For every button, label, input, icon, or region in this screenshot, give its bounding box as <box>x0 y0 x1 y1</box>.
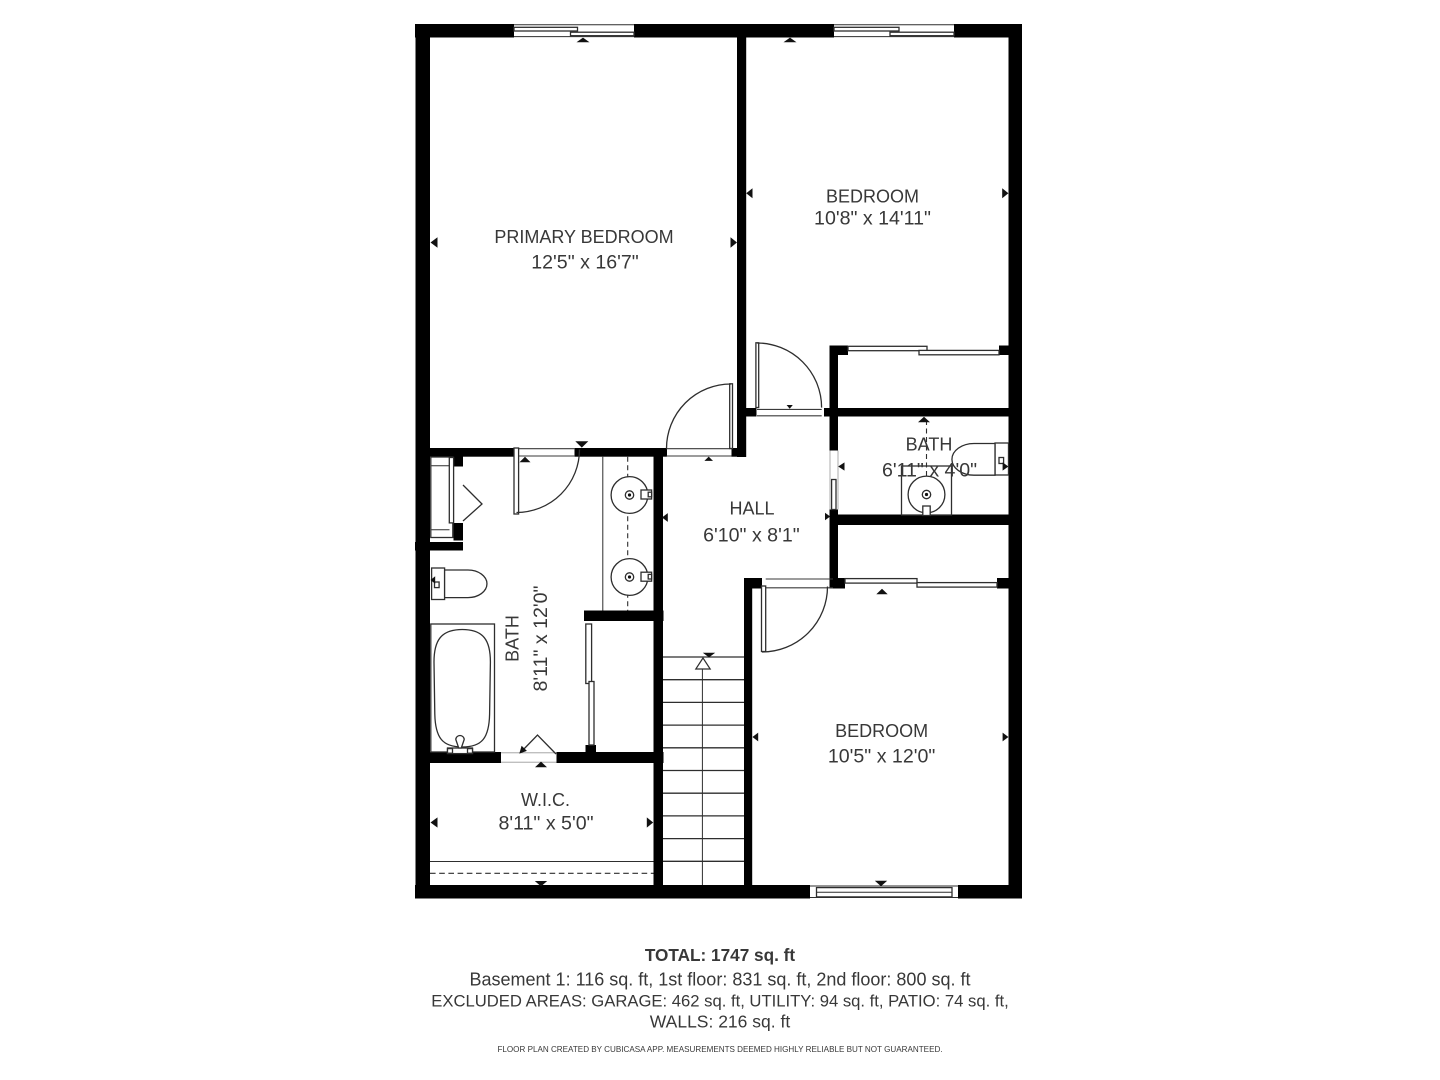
svg-text:10'8" x 14'11": 10'8" x 14'11" <box>814 208 931 230</box>
svg-text:8'11" x 12'0": 8'11" x 12'0" <box>530 585 552 691</box>
svg-text:Basement 1: 116 sq. ft, 1st fl: Basement 1: 116 sq. ft, 1st floor: 831 s… <box>470 970 971 990</box>
svg-text:BATH: BATH <box>503 615 523 662</box>
svg-text:HALL: HALL <box>729 499 774 519</box>
svg-text:W.I.C.: W.I.C. <box>521 790 570 810</box>
svg-text:10'5" x 12'0": 10'5" x 12'0" <box>828 745 936 767</box>
svg-text:FLOOR PLAN CREATED BY CUBICASA: FLOOR PLAN CREATED BY CUBICASA APP. MEAS… <box>497 1045 942 1054</box>
svg-text:TOTAL: 1747 sq. ft: TOTAL: 1747 sq. ft <box>645 945 796 965</box>
svg-text:WALLS: 216 sq. ft: WALLS: 216 sq. ft <box>650 1012 791 1032</box>
svg-text:BATH: BATH <box>906 435 953 455</box>
svg-text:BEDROOM: BEDROOM <box>835 721 928 741</box>
svg-text:6'11" x 4'0": 6'11" x 4'0" <box>882 459 977 481</box>
svg-text:EXCLUDED AREAS: GARAGE: 462 sq: EXCLUDED AREAS: GARAGE: 462 sq. ft, UTIL… <box>431 992 1008 1011</box>
svg-text:12'5" x 16'7": 12'5" x 16'7" <box>531 252 639 274</box>
svg-text:PRIMARY BEDROOM: PRIMARY BEDROOM <box>494 227 673 247</box>
svg-text:8'11" x 5'0": 8'11" x 5'0" <box>498 813 593 835</box>
svg-text:6'10" x 8'1": 6'10" x 8'1" <box>703 525 800 547</box>
svg-text:BEDROOM: BEDROOM <box>826 187 919 207</box>
